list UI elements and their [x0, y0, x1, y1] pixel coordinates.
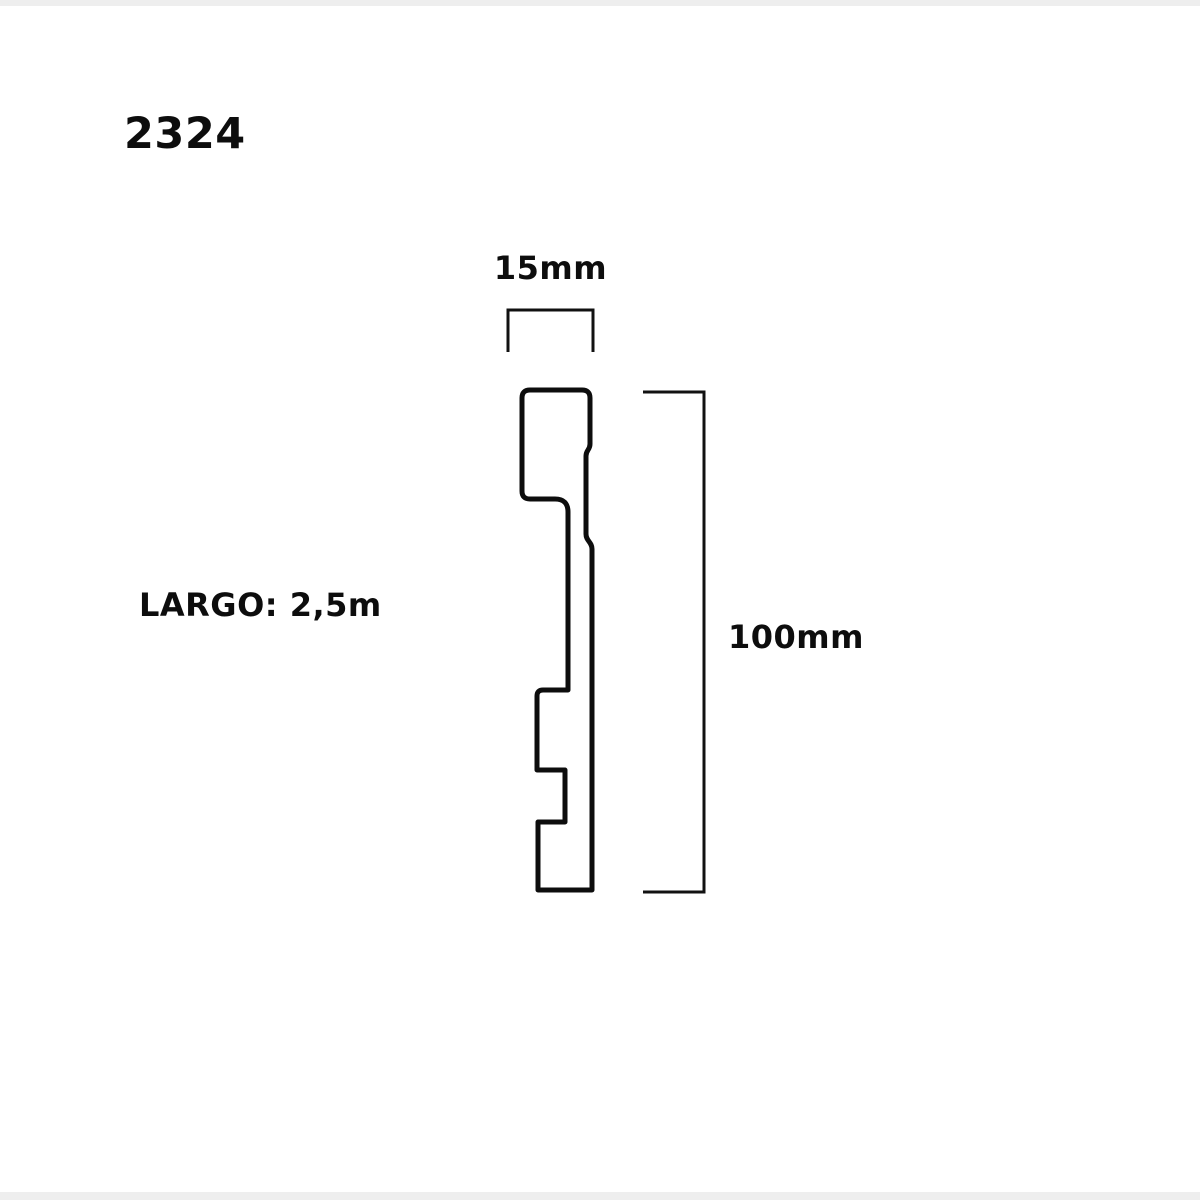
- height-dimension-bracket: [643, 392, 704, 892]
- profile-diagram-svg: [0, 0, 1200, 1200]
- diagram-canvas: 2324 15mm LARGO: 2,5m 100mm: [0, 0, 1200, 1200]
- width-dimension-bracket: [508, 310, 593, 352]
- profile-outline: [522, 390, 592, 890]
